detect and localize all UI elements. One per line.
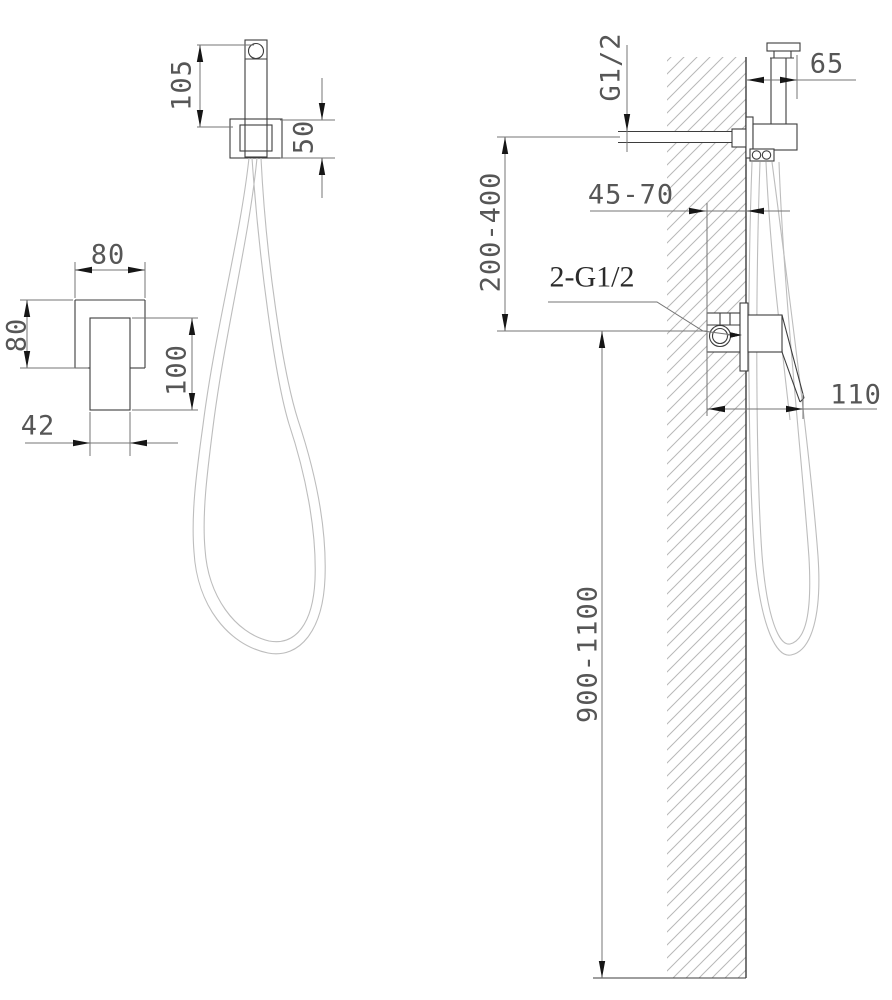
side-view: G1/2 65 45-70 200-400 [476, 32, 882, 978]
dim-label-80-width: 80 [91, 240, 126, 271]
technical-drawing: G1/2 65 45-70 200-400 [0, 0, 892, 1000]
dimension-100: 100 [132, 318, 198, 410]
dim-label-42: 42 [21, 411, 56, 442]
sprayer-nozzle [249, 44, 264, 59]
dim-label-65: 65 [810, 49, 845, 80]
dimension-65: 65 [747, 49, 856, 100]
dim-label-900-1100: 900-1100 [573, 585, 604, 723]
dim-label-50: 50 [289, 120, 320, 155]
mixer-lever-front [90, 318, 130, 410]
shower-hose-front [193, 158, 325, 654]
sprayer-handle-front [245, 40, 267, 157]
dimension-105: 105 [167, 45, 255, 127]
dimension-80-width: 80 [75, 240, 145, 299]
dim-label-105: 105 [167, 59, 198, 111]
trim-plate [740, 303, 748, 371]
hand-sprayer-side [767, 43, 800, 124]
dim-label-2-g12: 2-G1/2 [550, 261, 635, 294]
holder-block [753, 124, 797, 150]
dim-label-110: 110 [830, 380, 882, 411]
sprayer-head-side [767, 43, 800, 51]
dim-label-supply-thread: G1/2 [596, 32, 627, 101]
drawing-page: G1/2 65 45-70 200-400 [0, 0, 892, 1000]
mixer-trim-front [75, 300, 145, 410]
dim-label-200-400: 200-400 [476, 172, 507, 293]
dimension-50: 50 [280, 78, 335, 198]
handle-body-side [748, 315, 782, 352]
front-view: 105 50 80 80 [2, 40, 336, 654]
dim-label-80-height: 80 [2, 318, 33, 353]
dim-label-100: 100 [162, 344, 193, 396]
dim-label-45-70: 45-70 [588, 180, 674, 211]
dimension-42: 42 [21, 411, 178, 457]
dimension-900-1100: 900-1100 [573, 331, 606, 978]
hand-sprayer-front [230, 40, 282, 158]
pipe-fitting [732, 129, 746, 147]
